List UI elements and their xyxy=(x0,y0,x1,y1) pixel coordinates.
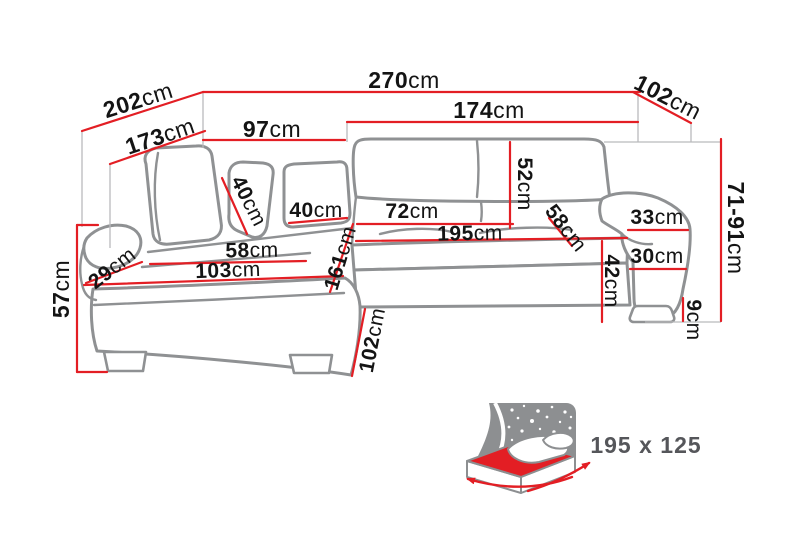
star-dot xyxy=(523,405,525,407)
star-dot xyxy=(559,421,561,423)
star-dot xyxy=(570,416,572,418)
sofa-backrest xyxy=(353,139,610,201)
dim-seat-width-label: 72cm xyxy=(385,200,438,223)
dim-chaise-back-width-label: 97cm xyxy=(243,116,301,142)
star-dot xyxy=(510,408,513,411)
star-dot xyxy=(511,439,513,441)
dim-overall-width-label: 270cm xyxy=(368,67,440,93)
star-dot xyxy=(569,427,572,430)
dim-backrest-height-label: 52cm xyxy=(514,157,537,210)
fold-out-bed-icon: 195 x 125 xyxy=(467,403,702,493)
chaise-leg-right xyxy=(290,355,332,373)
backrest-lower-seam xyxy=(481,202,482,221)
right-leg xyxy=(630,306,675,322)
dim-chaise-seat-length-label: 103cm xyxy=(195,257,261,282)
star-dot xyxy=(530,419,534,423)
dim-side-depth-label: 102cm xyxy=(630,69,706,125)
star-dot xyxy=(536,409,540,413)
sleeping-size-label: 195 x 125 xyxy=(590,432,701,458)
dim-seat-height-label: 57cm xyxy=(48,260,74,318)
dim-bed-length-label: 195cm xyxy=(437,221,503,245)
star-dot xyxy=(517,417,520,420)
bed-pillow xyxy=(543,433,574,449)
star-dot xyxy=(508,426,511,429)
star-dot xyxy=(546,416,549,419)
star-dot xyxy=(551,406,554,409)
dim-outer-diagonal-label: 202cm xyxy=(100,77,176,123)
dim-back-cushion-width-label: 40cm xyxy=(289,199,342,222)
dim-leg-height-label: 9cm xyxy=(683,299,706,340)
sofa-illustration xyxy=(80,139,690,375)
chaise-leg-left xyxy=(104,352,146,371)
dim-armrest-front-width-label: 30cm xyxy=(630,245,683,268)
star-dot xyxy=(563,410,566,413)
dim-armrest-top-depth-label: 33cm xyxy=(630,206,683,229)
dim-front-height-label: 42cm xyxy=(601,254,624,307)
diagram-canvas: 270cm 202cm 173cm 97cm 174cm 102cm 71-91… xyxy=(0,0,800,533)
dim-sofa-back-width-label: 174cm xyxy=(453,97,525,123)
sofa-base xyxy=(354,263,630,307)
dim-adjustable-height-label: 71-91cm xyxy=(723,182,749,275)
sofa-dimension-diagram: 270cm 202cm 173cm 97cm 174cm 102cm 71-91… xyxy=(0,0,800,533)
star-dot xyxy=(520,429,523,432)
star-dot xyxy=(539,428,541,430)
